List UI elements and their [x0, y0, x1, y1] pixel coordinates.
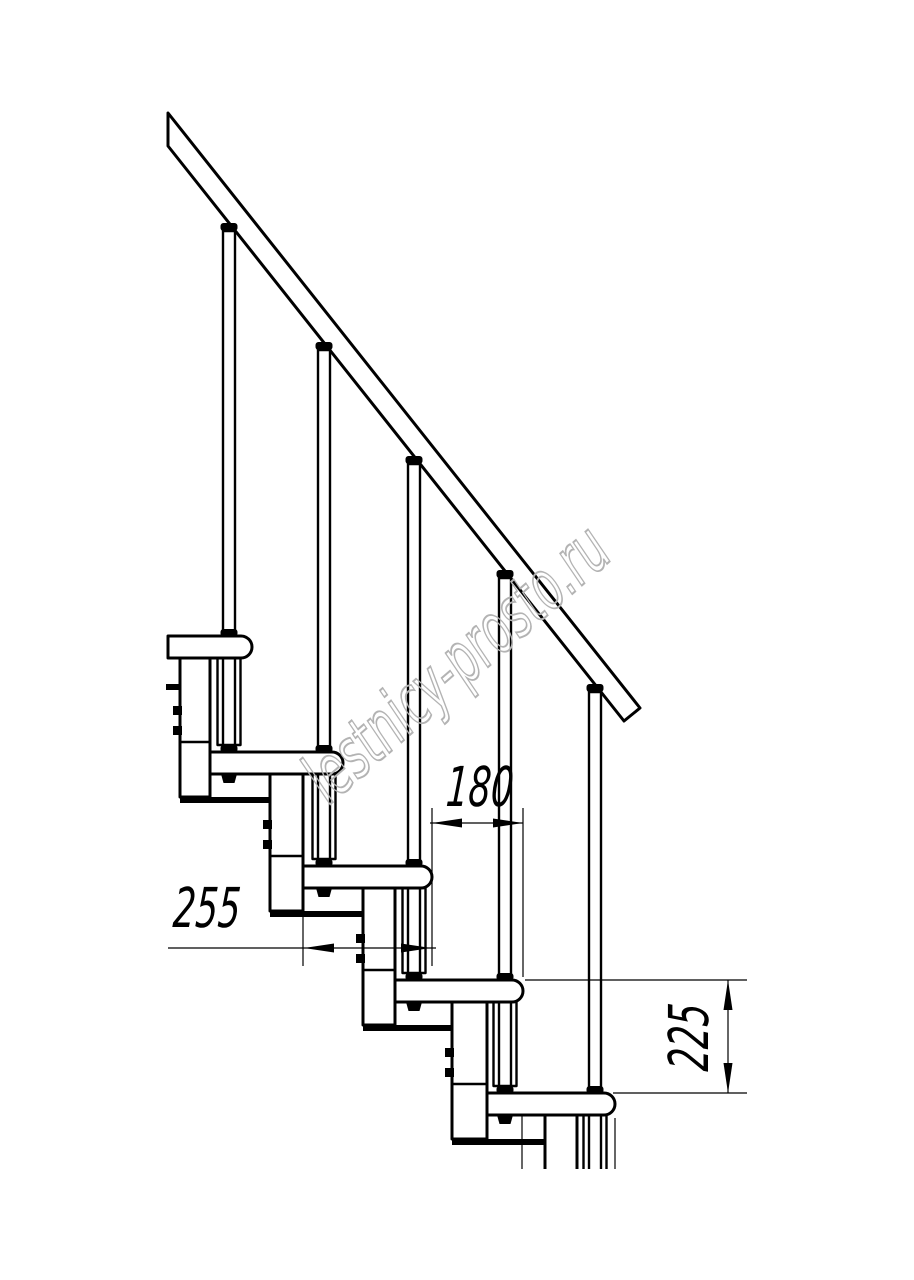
dimension-arrow [724, 1063, 733, 1093]
baluster-clamp [497, 973, 514, 981]
screw-bolt [356, 934, 365, 943]
support-module-column [363, 888, 395, 1025]
module-base-plate [363, 1025, 452, 1031]
baluster-anchor-cap [406, 973, 423, 981]
screw-bolt [263, 820, 272, 829]
baluster-anchor-cap [316, 859, 333, 867]
baluster-nut [316, 888, 332, 897]
screw-bolt [263, 840, 272, 849]
dimension-label-225: 225 [657, 1001, 721, 1073]
support-module-column [270, 774, 303, 911]
baluster-rail-mount [587, 684, 604, 692]
baluster-clamp [221, 629, 238, 637]
dim-225: 225 [525, 980, 747, 1093]
module-base-plate [180, 797, 270, 803]
support-module-column [545, 1115, 577, 1172]
bottom-crop [0, 1169, 914, 1280]
support-module-column [452, 1002, 487, 1139]
dimension-arrow [724, 980, 733, 1010]
bottom-crop-mask [0, 1169, 914, 1280]
screw-bolt [445, 1048, 454, 1057]
support-module-column [180, 658, 210, 797]
screw-bolt [173, 726, 182, 735]
screw-bolt [173, 706, 182, 715]
baluster-nut [221, 774, 237, 783]
baluster-anchor-cap [497, 1086, 514, 1094]
stair-tread [487, 1093, 615, 1115]
baluster-nut [406, 1002, 422, 1011]
staircase-technical-drawing: 180255225 lestnicy-prosto.ru [0, 0, 914, 1280]
stair-tread [303, 866, 432, 888]
baluster-nut [497, 1115, 513, 1124]
handrail [168, 113, 640, 721]
stair-tread [395, 980, 523, 1002]
staircase-structure [166, 113, 640, 1172]
screw-bolt [356, 954, 365, 963]
baluster-rail-mount [406, 456, 423, 464]
dimension-arrow [304, 944, 334, 953]
baluster-clamp [587, 1086, 604, 1094]
baluster-anchor-cap [221, 745, 238, 753]
module-base-plate [452, 1139, 545, 1145]
dimension-label-180: 180 [444, 755, 516, 819]
dimension-label-255: 255 [171, 876, 243, 940]
baluster-rail-mount [221, 223, 238, 231]
module-base-plate [166, 684, 181, 690]
module-base-plate [270, 911, 363, 917]
baluster-clamp [406, 859, 423, 867]
baluster-rail-mount [316, 342, 333, 350]
drawing-page: 180255225 lestnicy-prosto.ru [0, 0, 914, 1280]
baluster-rod [223, 231, 235, 745]
stair-tread [168, 636, 252, 658]
screw-bolt [445, 1068, 454, 1077]
dimension-arrow [432, 819, 462, 828]
